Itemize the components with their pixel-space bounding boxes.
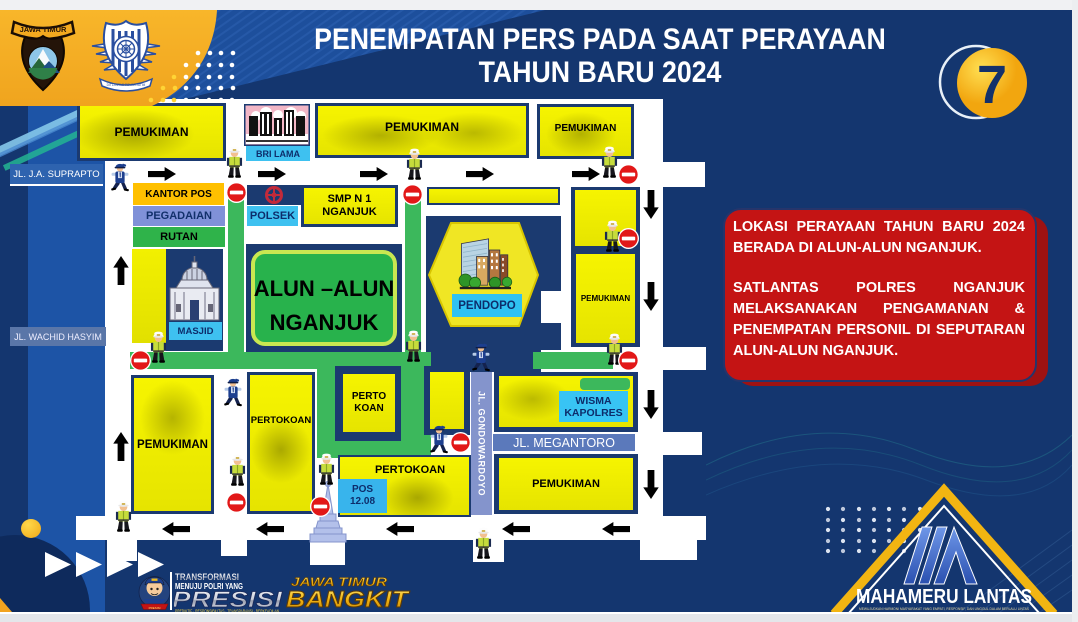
svg-text:MEWUJUDKAN HARMONI MASYARAKAT: MEWUJUDKAN HARMONI MASYARAKAT YANG EMPAT… [859, 606, 1029, 611]
svg-text:BANGKIT: BANGKIT [286, 586, 410, 612]
svg-text:MAHAMERU LANTAS: MAHAMERU LANTAS [856, 586, 1032, 608]
svg-text:7: 7 [977, 55, 1007, 115]
svg-text:PRESISI: PRESISI [149, 606, 161, 610]
